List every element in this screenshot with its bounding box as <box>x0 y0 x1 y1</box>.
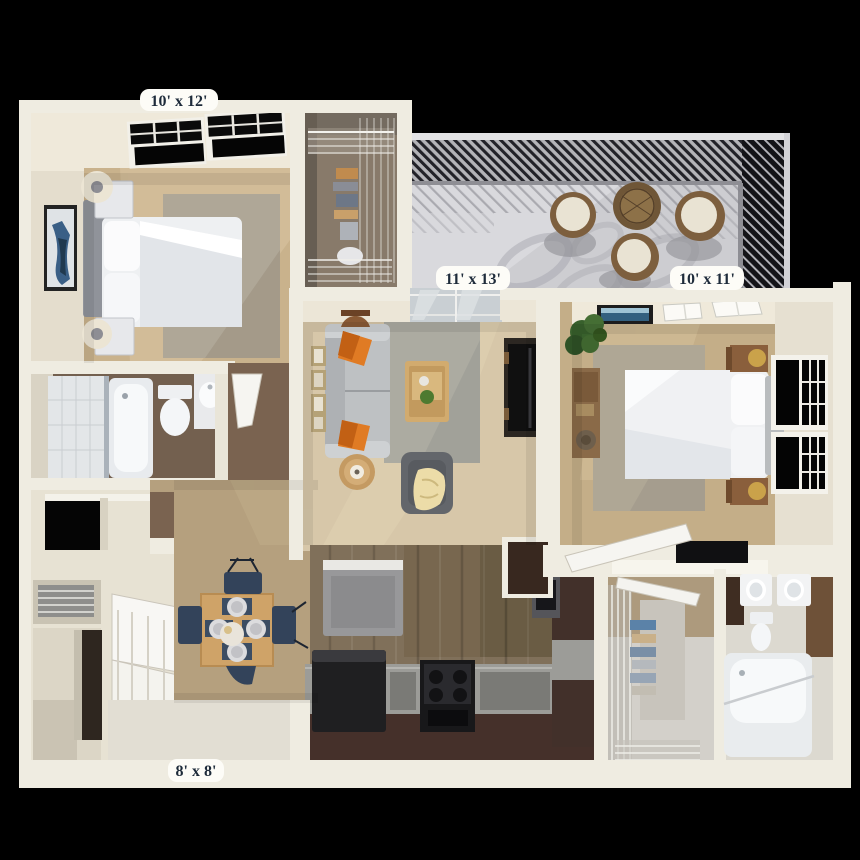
svg-text:10' x 11': 10' x 11' <box>679 271 735 288</box>
svg-text:10' x 12': 10' x 12' <box>151 93 208 110</box>
svg-text:8' x 8': 8' x 8' <box>176 763 217 780</box>
svg-text:11' x 13': 11' x 13' <box>445 271 501 288</box>
